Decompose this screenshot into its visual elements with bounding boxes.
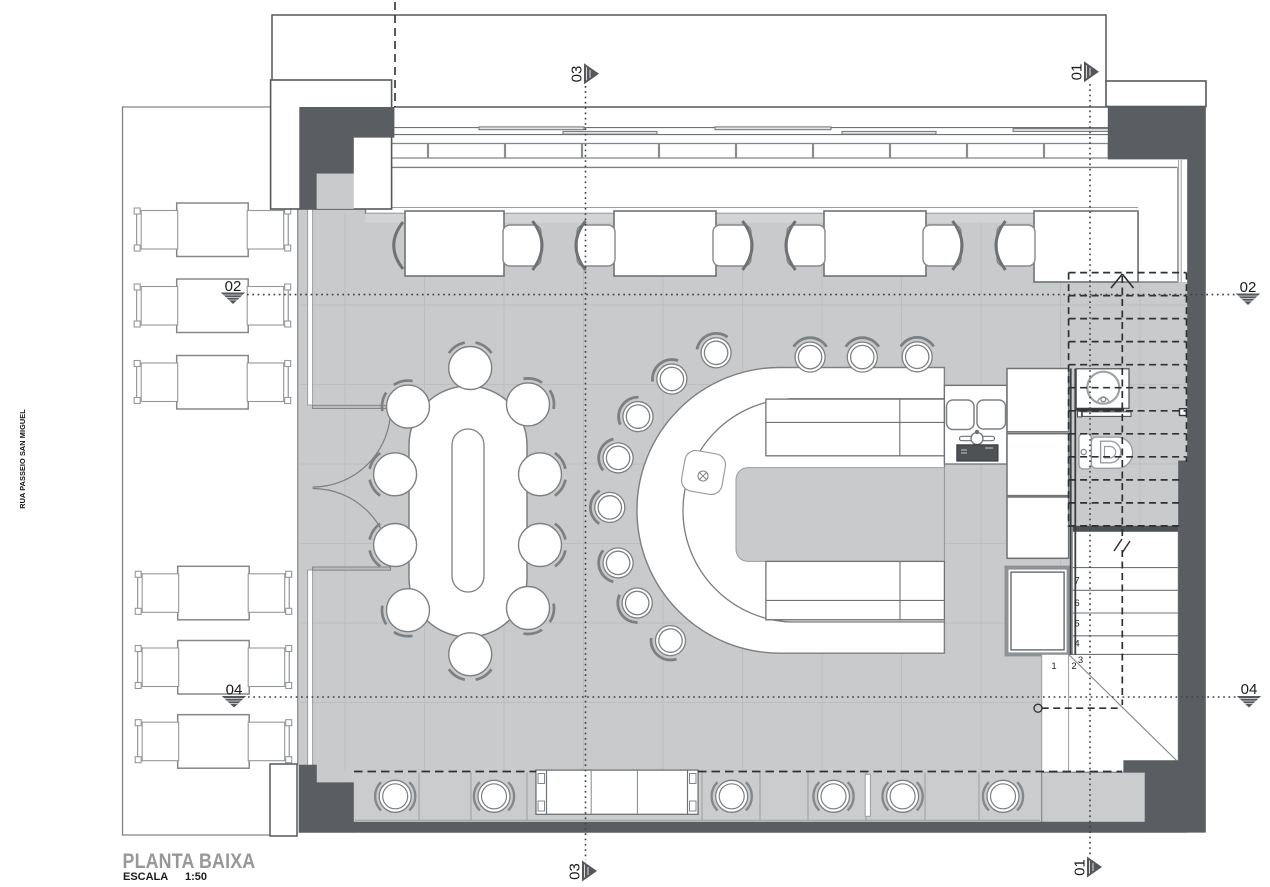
svg-text:6: 6 bbox=[1074, 598, 1079, 609]
svg-text:PLANTA BAIXA: PLANTA BAIXA bbox=[123, 850, 256, 874]
svg-text:01: 01 bbox=[1069, 64, 1086, 81]
svg-text:1:50: 1:50 bbox=[185, 871, 207, 883]
svg-text:RUA PASSEIO SAN MIGUEL: RUA PASSEIO SAN MIGUEL bbox=[18, 409, 27, 509]
svg-text:03: 03 bbox=[569, 66, 586, 83]
svg-text:04: 04 bbox=[226, 682, 243, 699]
svg-text:3: 3 bbox=[1078, 655, 1083, 666]
svg-text:04: 04 bbox=[1241, 681, 1258, 698]
svg-text:01: 01 bbox=[1072, 859, 1089, 876]
svg-text:ESCALA: ESCALA bbox=[123, 871, 168, 883]
svg-text:7: 7 bbox=[1074, 576, 1079, 587]
svg-text:4: 4 bbox=[1074, 639, 1079, 650]
svg-text:03: 03 bbox=[567, 863, 584, 880]
svg-text:5: 5 bbox=[1074, 619, 1079, 630]
svg-text:2: 2 bbox=[1071, 661, 1076, 672]
svg-text:02: 02 bbox=[1240, 279, 1257, 296]
svg-text:02: 02 bbox=[225, 278, 242, 295]
svg-text:1: 1 bbox=[1051, 661, 1056, 672]
